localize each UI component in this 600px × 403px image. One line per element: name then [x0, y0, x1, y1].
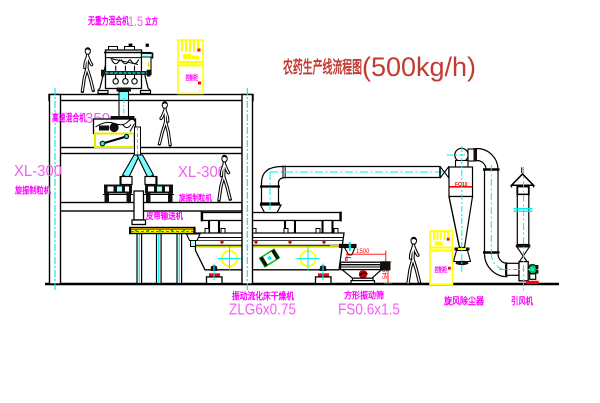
svg-text:皮带输送机: 皮带输送机	[145, 210, 183, 221]
svg-text:方形振动筛: 方形振动筛	[344, 290, 384, 301]
svg-text:农药生产线流程图: 农药生产线流程图	[282, 57, 362, 77]
svg-text:1500: 1500	[356, 249, 370, 255]
svg-text:旋振制粒机: 旋振制粒机	[14, 185, 51, 196]
svg-text:立方: 立方	[145, 16, 158, 27]
svg-text:控制柜: 控制柜	[186, 73, 199, 82]
svg-text:XL-300: XL-300	[178, 164, 226, 181]
svg-text:引风机: 引风机	[511, 296, 533, 308]
svg-text:(500kg/h): (500kg/h)	[362, 52, 476, 82]
svg-text:无重力混合机: 无重力混合机	[87, 15, 129, 28]
svg-text:XL-300: XL-300	[14, 163, 62, 180]
svg-text:FS0.6x1.5: FS0.6x1.5	[338, 302, 400, 319]
svg-text:ZLG6x0.75: ZLG6x0.75	[229, 302, 296, 319]
svg-text:1.5: 1.5	[128, 13, 143, 29]
svg-text:控制柜: 控制柜	[435, 265, 448, 274]
svg-text:旋振制粒机: 旋振制粒机	[178, 193, 212, 203]
svg-text:高速混合机: 高速混合机	[52, 112, 86, 125]
svg-text:旋风除尘器: 旋风除尘器	[443, 296, 484, 308]
